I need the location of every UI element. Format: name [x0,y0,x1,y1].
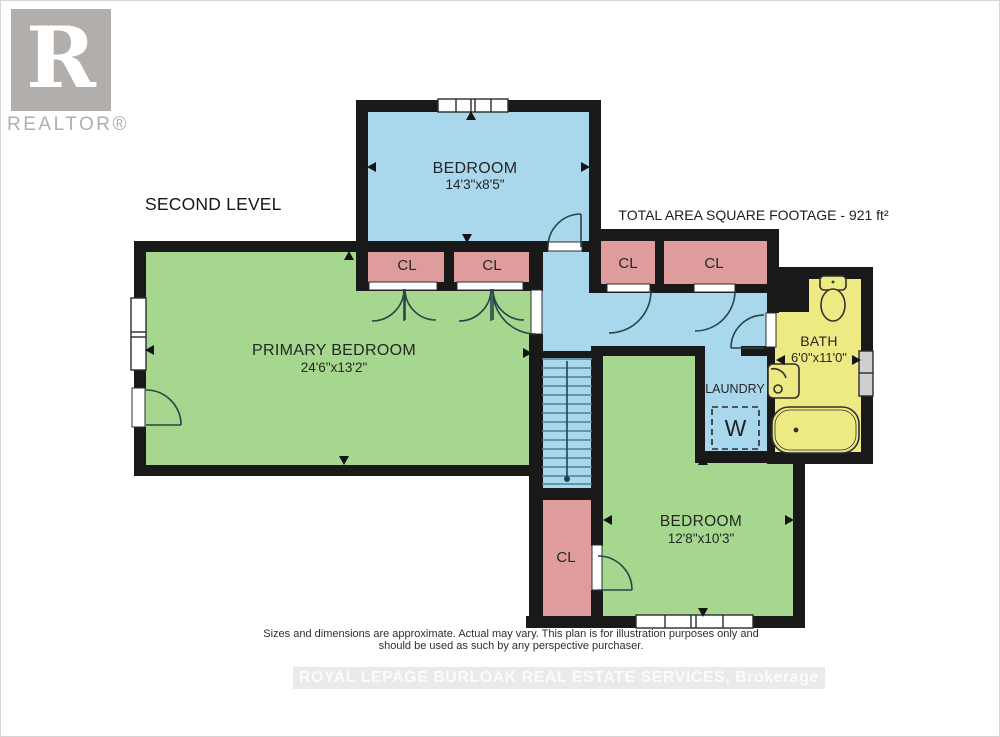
closet-4-label: CL [684,256,744,273]
closet-5-label: CL [536,550,596,567]
brokerage-watermark: ROYAL LEPAGE BURLOAK REAL ESTATE SERVICE… [293,667,825,689]
bedroom-top-dims: 14'3"x8'5" [375,178,575,193]
bath-name: BATH [769,334,869,349]
floorplan-page: R REALTOR® SECOND LEVEL TOTAL AREA SQUAR… [0,0,1000,737]
bedroom-top-name: BEDROOM [375,160,575,178]
level-title: SECOND LEVEL [145,195,282,214]
primary-bedroom-name: PRIMARY BEDROOM [234,342,434,360]
bathtub [772,407,859,453]
realtor-wordmark: REALTOR® [7,114,129,136]
bedroom-top-window [438,99,508,112]
toilet [820,276,846,321]
floor-plan-drawing [1,1,1000,737]
realtor-logo: R [11,9,111,111]
bedroom-bottom-window [636,615,753,628]
bedroom-bottom-dims: 12'8"x10'3" [601,532,801,547]
bedroom-bottom-name: BEDROOM [601,513,801,530]
disclaimer-line-2: should be used as such by any perspectiv… [251,640,771,652]
bath-dims: 6'0"x11'0" [769,351,869,365]
closet-2-label: CL [462,258,522,275]
primary-bedroom-dims: 24'6"x13'2" [234,361,434,376]
total-area-label: TOTAL AREA SQUARE FOOTAGE - 921 ft² [616,208,891,223]
washer-label: W [712,416,759,441]
bedroom-bottom-floor-a [601,354,697,620]
realtor-logo-letter: R [26,16,96,100]
closet-1-label: CL [377,258,437,275]
disclaimer-line-1: Sizes and dimensions are approximate. Ac… [251,628,771,640]
stairs-direction-dot [564,476,570,482]
primary-bedroom-window [131,298,146,370]
closet-3-label: CL [598,256,658,273]
laundry-name: LAUNDRY [695,383,775,397]
